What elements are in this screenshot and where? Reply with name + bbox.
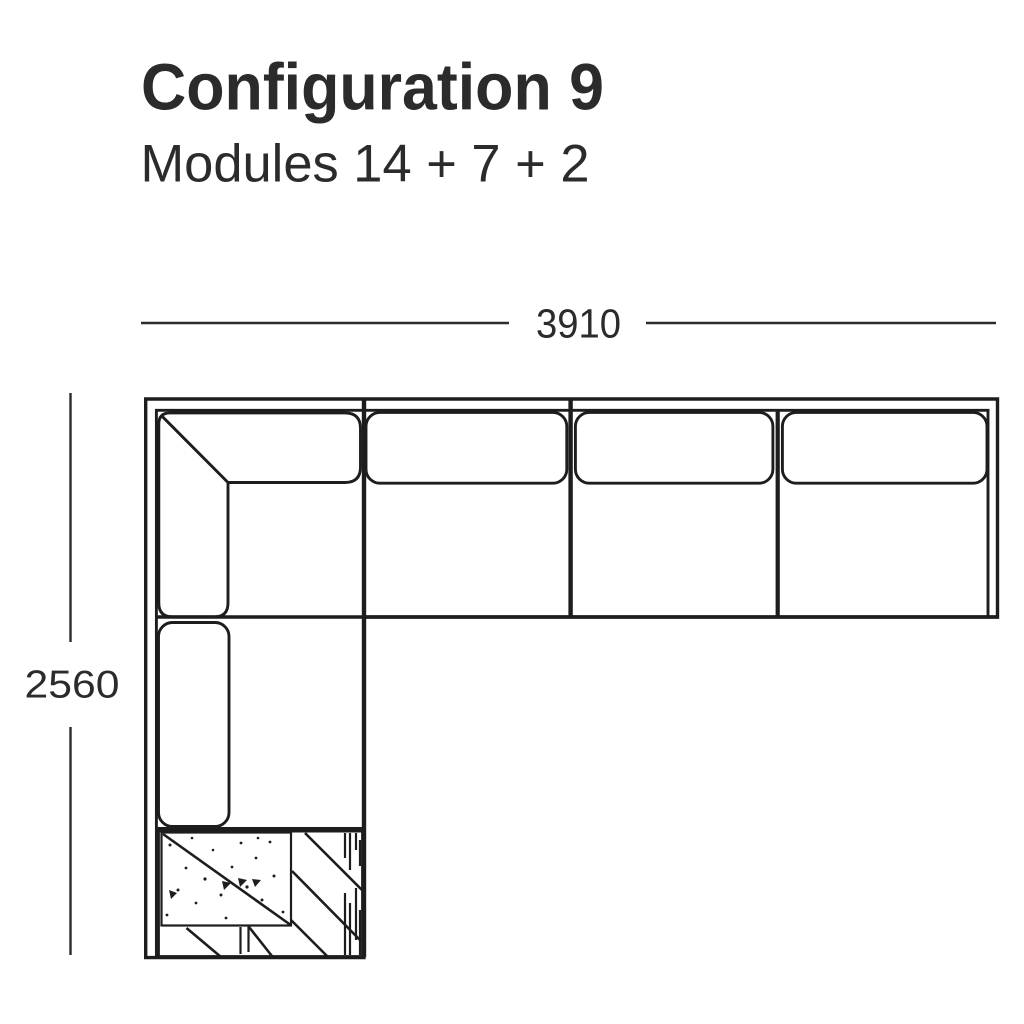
svg-text:Configuration 9: Configuration 9 bbox=[141, 50, 604, 124]
svg-text:2560: 2560 bbox=[25, 664, 120, 707]
svg-text:Modules 14 + 7 + 2: Modules 14 + 7 + 2 bbox=[141, 135, 590, 194]
svg-text:3910: 3910 bbox=[536, 301, 621, 347]
